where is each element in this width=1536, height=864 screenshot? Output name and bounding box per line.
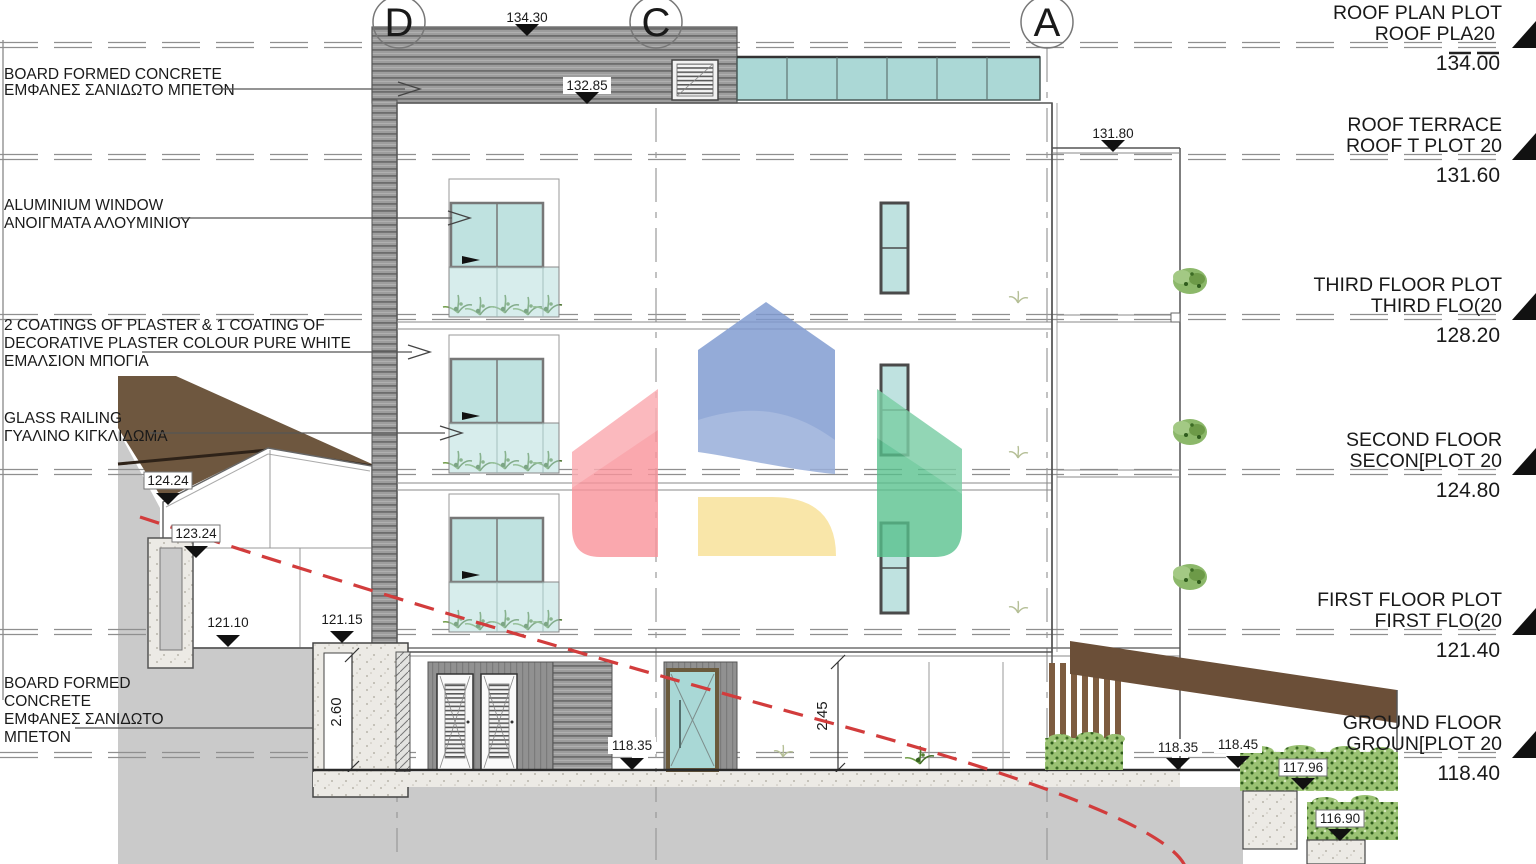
glass-railing-panel (449, 582, 559, 632)
svg-text:121.10: 121.10 (207, 615, 248, 630)
wall-section-hatch (396, 652, 410, 772)
level-arrow-icon (1512, 731, 1536, 758)
level-arrow-icon (1512, 608, 1536, 635)
level-value: 118.40 (1437, 762, 1500, 785)
level-label-second-floor: SECOND FLOOR SECON[PLOT 20 124.80 (1346, 429, 1536, 502)
svg-text:117.96: 117.96 (1283, 760, 1323, 775)
level-name: ROOF PLA20 (1375, 23, 1495, 45)
annotation-text: ALUMINIUM WINDOW (4, 197, 164, 214)
svg-text:121.15: 121.15 (321, 612, 362, 627)
level-label-first-floor: FIRST FLOOR PLOT FIRST FLO(20 121.40 (1317, 589, 1536, 662)
level-value: 134.00 (1436, 52, 1500, 75)
dimension-label: 2.45 (814, 701, 831, 730)
level-name: FIRST FLOOR PLOT (1317, 589, 1502, 611)
svg-text:118.45: 118.45 (1218, 737, 1258, 752)
balcony-bush (1173, 268, 1207, 294)
annotation-text: ΕΜΦΑΝΕΣ ΣΑΝΙΔΩΤΟ (4, 711, 164, 728)
annotation-text: CONCRETE (4, 693, 91, 710)
level-arrow-icon (1512, 21, 1536, 48)
annotation-text: 2 COATINGS OF PLASTER & 1 COATING OF (4, 317, 325, 334)
svg-text:124.24: 124.24 (147, 473, 189, 488)
balcony-bush (1173, 564, 1207, 590)
window-unit-second-floor (443, 335, 562, 473)
level-arrow-icon (1512, 448, 1536, 475)
planter-wall-2 (1307, 840, 1365, 864)
level-name: SECOND FLOOR (1346, 429, 1502, 451)
level-name: SECON[PLOT 20 (1350, 450, 1503, 472)
svg-text:134.30: 134.30 (506, 10, 547, 25)
glass-railing-panel (449, 423, 559, 473)
svg-text:118.35: 118.35 (612, 738, 652, 753)
elevation-drawing-canvas: 2.60 2.45 (0, 0, 1536, 864)
annotation-board-formed-concrete: BOARD FORMED CONCRETE ΕΜΦΑΝΕΣ ΣΑΝΙΔΩΤΟ Μ… (4, 66, 420, 99)
dimension-label: 2.60 (328, 697, 345, 726)
planter-wall-1 (1243, 791, 1297, 849)
svg-text:132.85: 132.85 (566, 78, 607, 93)
level-label-third-floor: THIRD FLOOR PLOT THIRD FLO(20 128.20 (1313, 274, 1536, 347)
svg-text:123.24: 123.24 (175, 526, 217, 541)
concrete-channel-cavity (160, 548, 182, 650)
annotation-text: DECORATIVE PLASTER COLOUR PURE WHITE (4, 335, 351, 352)
louver-door-1 (437, 674, 473, 770)
annotation-text: GLASS RAILING (4, 410, 122, 427)
svg-text:118.35: 118.35 (1158, 740, 1198, 755)
annotation-text: ΑΝΟΙΓΜΑΤΑ ΑΛΟΥΜΙΝΙΟΥ (4, 215, 191, 232)
grid-letter: D (385, 1, 414, 45)
annotation-text: ΕΜΑΛΣΙΟΝ ΜΠΟΓΙΑ (4, 353, 149, 370)
level-arrow-icon (1512, 293, 1536, 320)
level-name: ROOF T PLOT 20 (1346, 135, 1502, 157)
bottom-ground-mass (313, 787, 1243, 864)
level-value: 128.20 (1436, 324, 1500, 347)
ground-striped-panel (553, 662, 612, 770)
glass-railing-panel (449, 267, 559, 317)
annotation-text: ΓΥΑΛΙΝΟ ΚΙΓΚΛΙΔΩΜΑ (4, 428, 168, 445)
annotation-text: BOARD FORMED (4, 675, 131, 692)
window-unit-first-floor (443, 494, 562, 632)
level-label-roof-plan: ROOF PLAN PLOT ROOF PLA20 134.00 (1333, 2, 1536, 75)
annotation-plaster: 2 COATINGS OF PLASTER & 1 COATING OF DEC… (4, 317, 430, 370)
floor-slab-strip (313, 772, 1180, 787)
level-value: 131.60 (1436, 164, 1500, 187)
svg-text:131.80: 131.80 (1092, 126, 1133, 141)
left-wall-board-concrete (372, 100, 397, 652)
louver-door-2 (481, 674, 517, 770)
svg-text:116.90: 116.90 (1320, 811, 1360, 826)
level-name: GROUN[PLOT 20 (1346, 733, 1502, 755)
level-name: FIRST FLO(20 (1374, 610, 1502, 632)
level-name: THIRD FLO(20 (1371, 295, 1502, 317)
annotation-text: BOARD FORMED CONCRETE (4, 66, 222, 83)
window-unit-third-floor (443, 179, 562, 317)
level-label-roof-terrace: ROOF TERRACE ROOF T PLOT 20 131.60 (1346, 114, 1536, 187)
level-value: 121.40 (1436, 639, 1500, 662)
parapet-louver-vent (672, 60, 718, 100)
level-name: GROUND FLOOR (1343, 712, 1502, 734)
grid-letter: C (642, 1, 671, 45)
level-name: ROOF PLAN PLOT (1333, 2, 1502, 24)
level-name: THIRD FLOOR PLOT (1313, 274, 1502, 296)
annotation-text: ΜΠΕΤΟΝ (4, 729, 71, 746)
level-value: 124.80 (1436, 479, 1500, 502)
level-name: ROOF TERRACE (1347, 114, 1502, 136)
roof-glass-railing (737, 57, 1040, 100)
balcony-bush (1173, 419, 1207, 445)
annotation-text: ΕΜΦΑΝΕΣ ΣΑΝΙΔΩΤΟ ΜΠΕΤΟΝ (4, 82, 235, 99)
grid-letter: A (1034, 1, 1061, 45)
narrow-window-third (881, 203, 908, 293)
level-arrow-icon (1512, 133, 1536, 160)
